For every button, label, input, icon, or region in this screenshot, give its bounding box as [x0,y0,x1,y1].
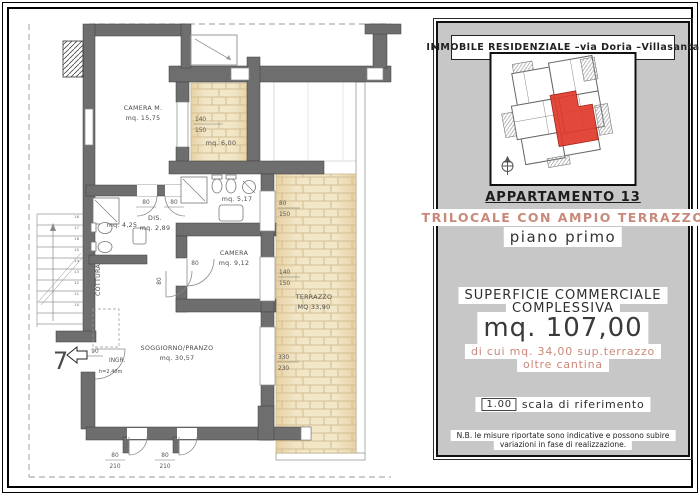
bidet-icon [212,179,222,193]
svg-text:14: 14 [74,258,79,263]
tub-icon [219,205,243,221]
room-area-dis: mq. 2,89 [140,225,171,232]
dim-south-door2-bottom: 210 [159,464,170,470]
svg-text:15: 15 [74,247,79,252]
kitchen-counter-dashed [93,309,119,347]
svg-text:18: 18 [74,214,79,219]
room-area-camera-m: mq. 15,75 [126,115,161,122]
room-area-camera: mq. 9,12 [219,260,250,267]
dim-loggia-width-top: 140 [195,117,206,123]
dim-south-door1-bottom: 210 [109,464,120,470]
apartment-title: APPARTAMENTO 13 [485,190,641,205]
dim-door-soggiorno: 80 [191,261,199,267]
dim-loggia-width-bottom: 150 [195,128,206,134]
entrance-arrow-icon [67,347,87,363]
surface-value: mq. 107,00 [477,312,648,344]
stair-step-numbers: 18 17 16 15 14 13 12 11 10 [74,214,79,307]
svg-text:10: 10 [74,302,79,307]
entrance-label: INGR. [109,358,125,364]
room-label-cottura: COTTURA [95,264,102,296]
room-area-soggiorno: mq. 30,57 [160,355,195,362]
column-hatched [63,41,83,77]
dim-window2-bottom: 150 [279,281,290,287]
scale-label: scala di riferimento [522,398,645,411]
svg-text:17: 17 [74,225,79,230]
disclaimer-line2: variazioni in fase di realizzazione. [494,439,632,450]
floor-plan-drawing: 18 17 16 15 14 13 12 11 10 [9,9,436,485]
room-area-terrazzo: MQ 33,90 [298,304,331,311]
dim-window1-bottom: 150 [279,212,290,218]
dim-south-door2-top: 80 [161,453,169,459]
svg-text:12: 12 [74,280,79,285]
dim-terrace-door-bottom: 230 [278,366,289,372]
room-area-bath2: mq. 4,25 [107,222,138,229]
dim-door-b: 80 [170,200,178,206]
apartment-floor: piano primo [504,227,622,247]
north-compass-icon [502,157,514,175]
dim-door-camera: 80 [157,277,163,285]
flyer-page: 18 17 16 15 14 13 12 11 10 [0,0,700,495]
dim-window2-top: 140 [279,270,290,276]
room-label-camera-m: CAMERA M. [124,105,163,112]
dim-south-door1-top: 80 [111,453,119,459]
room-label-terrazzo: TERRAZZO [295,294,333,301]
room-area-loggia: mq. 6,00 [206,140,237,147]
surface-detail-line2: oltre cantina [517,357,609,372]
dim-door-a: 80 [142,200,150,206]
toilet-icon [226,179,236,193]
entrance-marker: 7 90 INGR. h=2,40m [53,347,125,375]
svg-text:11: 11 [74,291,79,296]
dim-entrance-width: 90 [91,349,99,355]
apartment-type: TRILOCALE CON AMPIO TERRAZZO [416,209,700,226]
elevator-icon [191,35,237,65]
key-plan-box [490,52,637,186]
room-label-soggiorno: SOGGIORNO/PRANZO [141,345,214,352]
unit-number: 7 [53,347,68,375]
info-panel: IMMOBILE RESIDENZIALE –via Doria –Villas… [436,21,690,457]
entrance-height: h=2,40m [99,369,122,375]
key-plan-map [492,54,631,180]
room-label-camera: CAMERA [220,250,249,257]
room-area-bath1: mq. 5,17 [222,196,253,203]
dim-window1-top: 80 [279,201,287,207]
scale-row: 1.00 scala di riferimento [475,397,650,412]
room-label-dis: DIS. [148,215,162,222]
svg-text:16: 16 [74,236,79,241]
dim-terrace-door-top: 330 [278,355,289,361]
svg-text:13: 13 [74,269,79,274]
scale-value-box: 1.00 [481,398,516,411]
bidet-icon [98,242,112,253]
